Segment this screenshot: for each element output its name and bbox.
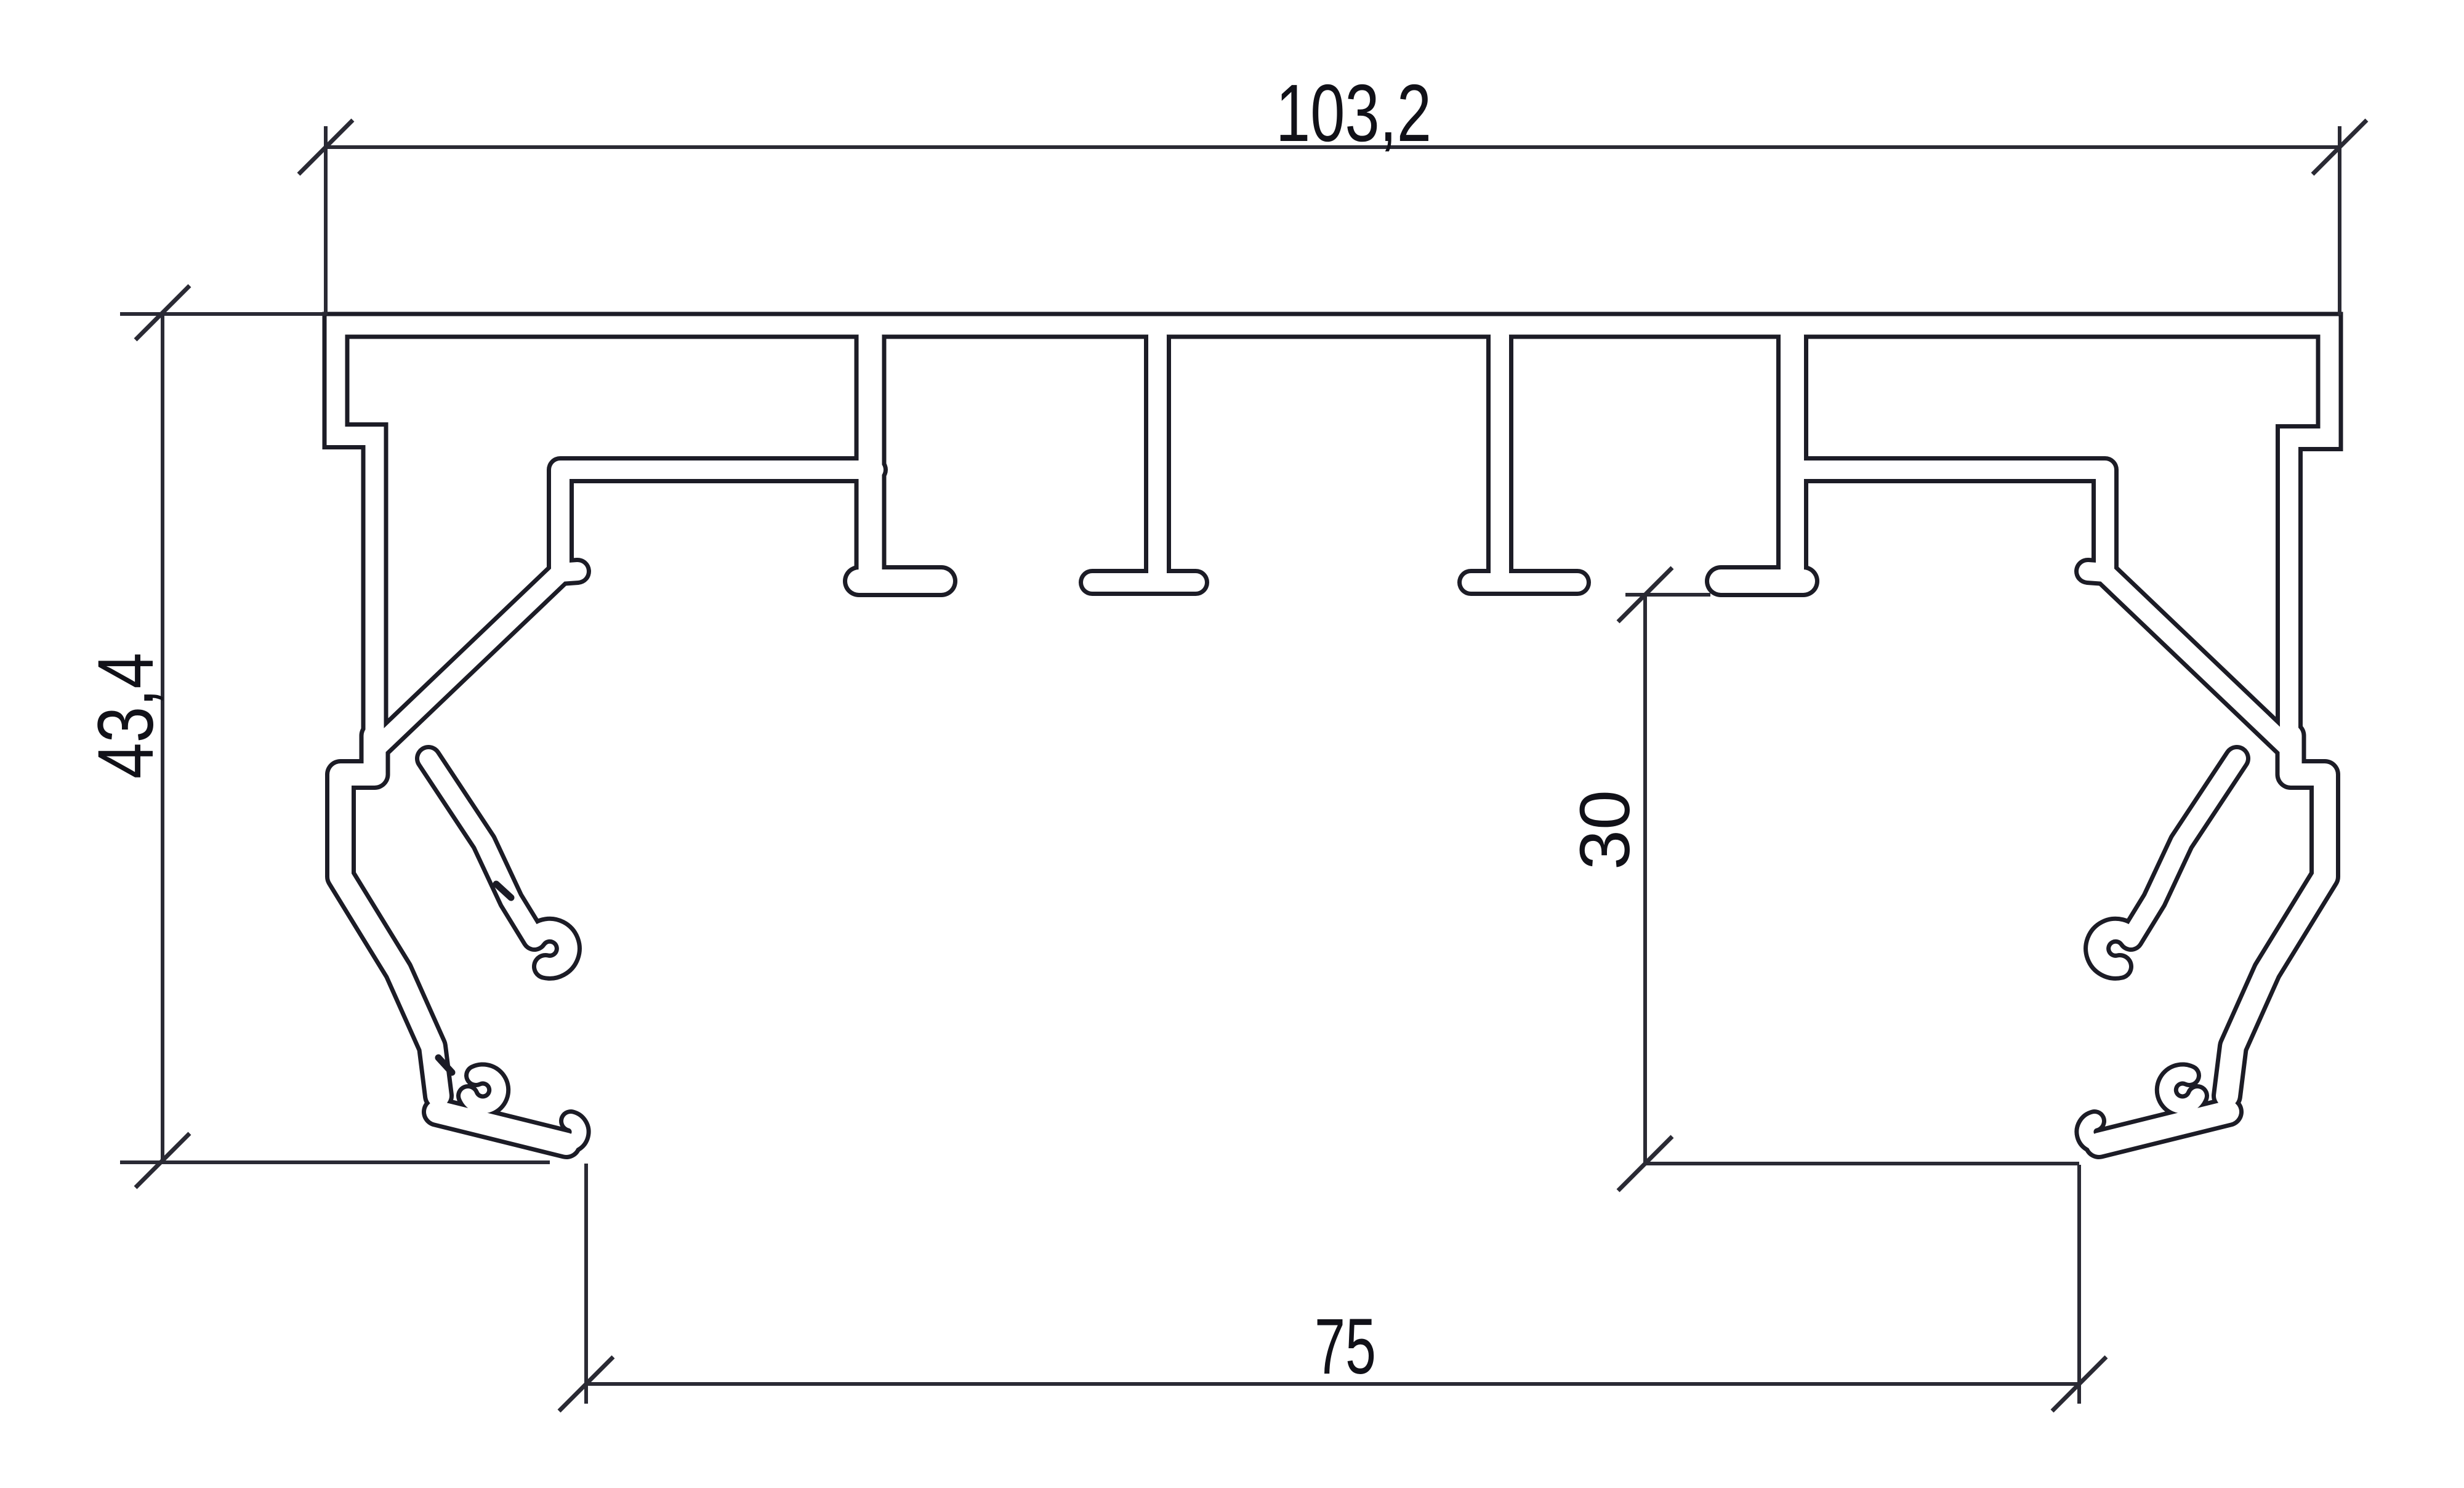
svg-text:43,4: 43,4 — [82, 653, 170, 779]
svg-text:30: 30 — [1566, 790, 1645, 870]
svg-text:103,2: 103,2 — [1276, 68, 1431, 158]
svg-text:75: 75 — [1315, 1303, 1376, 1391]
